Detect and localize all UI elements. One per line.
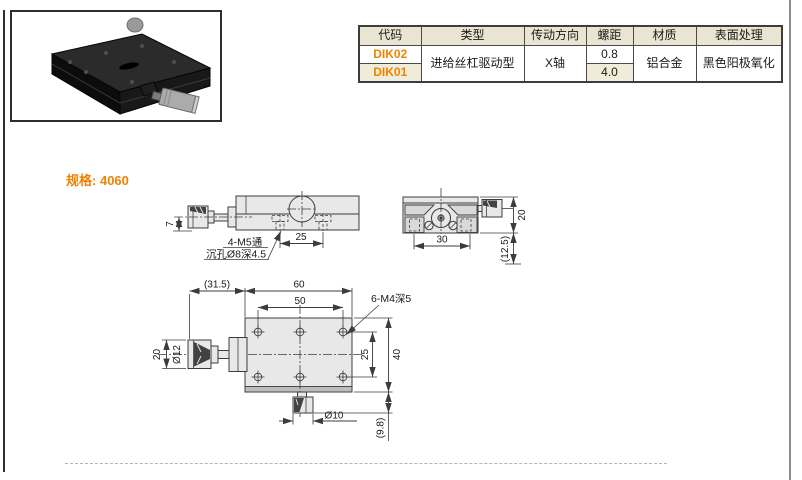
catalog-page: 代码 类型 传动方向 螺距 材质 表面处理 DIK02 进给丝杠驱动型 X轴 0…: [0, 0, 802, 480]
dashed-divider: [65, 463, 667, 464]
dim-label-60: 60: [293, 280, 305, 291]
plan-view-drawing: 20 Ø12 (31.5) 60 50 6-M4深5 25: [152, 280, 411, 442]
table-header-row: 代码 类型 传动方向 螺距 材质 表面处理: [359, 26, 782, 46]
dim-label-9-8: (9.8): [376, 418, 387, 439]
dim-label-7: 7: [165, 221, 176, 227]
dim-label-31-5: (31.5): [204, 280, 230, 291]
cell-material: 铝合金: [633, 46, 696, 83]
table-row: DIK02 进给丝杠驱动型 X轴 0.8 铝合金 黑色阳极氧化: [359, 46, 782, 64]
header-finish: 表面处理: [696, 26, 782, 46]
header-code: 代码: [359, 26, 421, 46]
note-label-m5: 4-M5通: [228, 237, 263, 249]
dim-label-o10: Ø10: [325, 411, 344, 422]
dim-label-30: 30: [436, 235, 448, 246]
dim-label-25-side: 25: [295, 232, 307, 243]
technical-drawings: 7 25 4-M5通 沉孔Ø8深4.5: [145, 182, 550, 452]
header-direction: 传动方向: [524, 26, 586, 46]
spec-value: 4060: [100, 173, 129, 188]
cell-direction: X轴: [524, 46, 586, 83]
note-label-m4: 6-M4深5: [371, 293, 411, 305]
dim-label-50: 50: [294, 296, 306, 307]
dim-label-o12: Ø12: [172, 345, 183, 364]
cell-type: 进给丝杠驱动型: [421, 46, 524, 83]
rear-knob-shape: [127, 18, 143, 32]
end-view-drawing: 20 (12.5) 30: [403, 188, 528, 264]
product-photo: [12, 12, 220, 120]
dim-label-40: 40: [392, 349, 403, 361]
cell-pitch-40: 4.0: [586, 64, 633, 83]
dim-label-20-plan: 20: [152, 349, 163, 361]
dim-label-20-end: 20: [517, 209, 528, 221]
cell-code-dik02: DIK02: [359, 46, 421, 64]
cell-pitch-08: 0.8: [586, 46, 633, 64]
product-photo-frame: [10, 10, 222, 122]
header-pitch: 螺距: [586, 26, 633, 46]
header-material: 材质: [633, 26, 696, 46]
product-spec-table: 代码 类型 传动方向 螺距 材质 表面处理 DIK02 进给丝杠驱动型 X轴 0…: [358, 25, 783, 83]
header-type: 类型: [421, 26, 524, 46]
cell-finish: 黑色阳极氧化: [696, 46, 782, 83]
spec-size-line: 规格: 4060: [66, 170, 129, 189]
side-view-drawing: 7 25 4-M5通 沉孔Ø8深4.5: [165, 191, 359, 261]
page-left-border: [3, 10, 5, 472]
dim-label-25-plan: 25: [360, 349, 371, 361]
dim-label-12-5: (12.5): [500, 236, 511, 262]
note-label-counterbore: 沉孔Ø8深4.5: [206, 248, 266, 261]
spec-label: 规格:: [66, 173, 96, 188]
cell-code-dik01: DIK01: [359, 64, 421, 83]
page-right-border: [789, 0, 791, 480]
